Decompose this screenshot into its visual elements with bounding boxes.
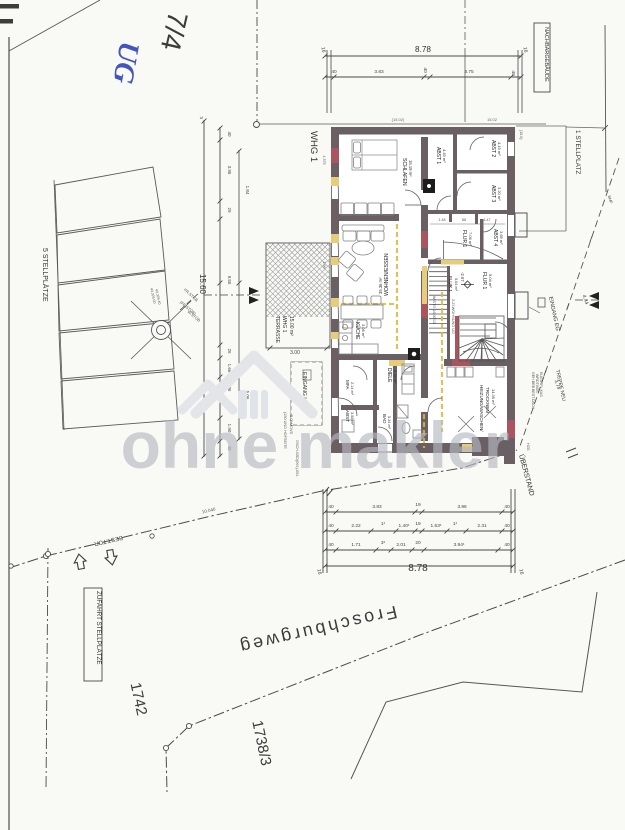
svg-text:19: 19 xyxy=(415,502,421,508)
svg-text:ABST 2: ABST 2 xyxy=(490,140,496,157)
svg-text:3¹: 3¹ xyxy=(381,540,386,546)
svg-text:40: 40 xyxy=(331,69,337,75)
svg-text:3.96: 3.96 xyxy=(457,504,467,510)
svg-text:40: 40 xyxy=(328,523,334,529)
svg-text:1.48: 1.48 xyxy=(439,218,446,222)
svg-text:88: 88 xyxy=(462,218,466,222)
svg-text:1 STELLPLATZ: 1 STELLPLATZ xyxy=(574,130,581,174)
svg-text:2.14 m²: 2.14 m² xyxy=(350,382,354,396)
svg-text:1.40¹: 1.40¹ xyxy=(399,523,410,529)
svg-text:1.63¹: 1.63¹ xyxy=(431,523,442,529)
svg-text:3.06 m²: 3.06 m² xyxy=(361,324,366,338)
svg-text:DIELE: DIELE xyxy=(386,368,392,383)
svg-text:40: 40 xyxy=(510,70,516,76)
svg-text:WRDT.BSS: WRDT.BSS xyxy=(535,374,539,393)
svg-text:WOHNEN/ESSEN: WOHNEN/ESSEN xyxy=(384,253,390,296)
svg-text:WHG 1: WHG 1 xyxy=(308,131,319,162)
svg-text:15.00 m²: 15.00 m² xyxy=(288,316,294,336)
svg-text:WHG 1: WHG 1 xyxy=(281,316,287,333)
svg-text:ABST 3: ABST 3 xyxy=(490,185,496,202)
svg-text:ZUFAHRT STELLPLÄTZE: ZUFAHRT STELLPLÄTZE xyxy=(95,591,103,665)
svg-text:4.15 m²: 4.15 m² xyxy=(497,142,502,156)
svg-text:3.75: 3.75 xyxy=(464,69,474,75)
svg-text:19: 19 xyxy=(415,521,421,527)
svg-text:5.04 m²: 5.04 m² xyxy=(454,278,458,292)
svg-text:3.20 m²: 3.20 m² xyxy=(497,187,502,201)
svg-text:2-ZI.WOHNUNG UG: 2-ZI.WOHNUNG UG xyxy=(451,299,455,334)
svg-text:1.47: 1.47 xyxy=(484,218,491,222)
svg-text:(15.02): (15.02) xyxy=(392,117,405,122)
svg-text:40: 40 xyxy=(504,523,510,529)
svg-text:40: 40 xyxy=(227,131,232,137)
svg-text:7.06 m²: 7.06 m² xyxy=(468,232,473,246)
svg-text:1¹: 1¹ xyxy=(381,521,386,527)
svg-text:1¹: 1¹ xyxy=(453,521,458,527)
svg-text:15.02: 15.02 xyxy=(487,117,498,122)
svg-text:1.84: 1.84 xyxy=(245,186,250,195)
svg-text:4.49 m²: 4.49 m² xyxy=(442,149,447,163)
svg-text:15.60: 15.60 xyxy=(198,274,207,295)
svg-text:NACHBARGEBÄUDE: NACHBARGEBÄUDE xyxy=(543,27,550,82)
svg-text:KÜCHE: KÜCHE xyxy=(354,322,361,340)
svg-text:(15.0): (15.0) xyxy=(519,130,523,139)
svg-text:26: 26 xyxy=(227,348,232,354)
svg-text:15.19 m²: 15.19 m² xyxy=(408,160,413,177)
svg-text:8.78: 8.78 xyxy=(415,45,431,54)
svg-text:W.STG 16/30/15: W.STG 16/30/15 xyxy=(432,296,436,324)
svg-text:FLUR 1: FLUR 1 xyxy=(448,276,453,292)
svg-text:40: 40 xyxy=(328,504,334,510)
svg-text:TERRASSE: TERRASSE xyxy=(274,316,280,344)
svg-text:8.78: 8.78 xyxy=(408,563,428,574)
svg-text:SCHLAFEN: SCHLAFEN xyxy=(401,158,407,186)
svg-text:3.95: 3.95 xyxy=(227,166,232,175)
svg-text:ABST 4: ABST 4 xyxy=(492,229,498,246)
svg-text:FLUR 1: FLUR 1 xyxy=(461,230,467,247)
svg-text:1.71: 1.71 xyxy=(351,542,361,548)
svg-text:4.375: 4.375 xyxy=(322,156,326,165)
svg-text:3.83: 3.83 xyxy=(372,504,382,510)
svg-text:40: 40 xyxy=(504,504,510,510)
svg-text:40: 40 xyxy=(422,67,428,73)
svg-text:40: 40 xyxy=(504,542,510,548)
svg-text:1.99: 1.99 xyxy=(322,262,326,269)
svg-text:29: 29 xyxy=(227,207,232,213)
svg-text:14.35 m²: 14.35 m² xyxy=(491,389,496,405)
svg-text:ohne makler: ohne makler xyxy=(121,408,510,482)
svg-text:3.65 m²: 3.65 m² xyxy=(499,231,504,245)
svg-text:5.04 m²: 5.04 m² xyxy=(488,274,493,288)
svg-text:3.83: 3.83 xyxy=(374,69,384,75)
svg-text:FLUR 1: FLUR 1 xyxy=(481,272,487,289)
svg-text:GEH.BEB.BEST.DACH: GEH.BEB.BEST.DACH xyxy=(531,372,535,410)
svg-text:5.34 m²: 5.34 m² xyxy=(393,370,398,384)
svg-text:HZG: HZG xyxy=(526,443,530,451)
svg-text:ABST 1: ABST 1 xyxy=(435,147,441,164)
svg-text:5 STELLPLÄTZE: 5 STELLPLÄTZE xyxy=(41,248,49,302)
svg-text:2.31: 2.31 xyxy=(477,523,487,529)
svg-text:-2.67: -2.67 xyxy=(460,272,465,282)
svg-text:KUGSTFL.KAS: KUGSTFL.KAS xyxy=(539,372,543,397)
svg-text:40: 40 xyxy=(328,542,334,548)
svg-text:2.01: 2.01 xyxy=(396,542,406,548)
svg-text:20: 20 xyxy=(415,540,421,546)
svg-text:2.22: 2.22 xyxy=(351,523,361,529)
svg-text:3.00: 3.00 xyxy=(290,350,300,356)
svg-text:9.55: 9.55 xyxy=(227,276,232,285)
svg-text:3.94¹: 3.94¹ xyxy=(454,542,465,548)
svg-text:35.36 m²: 35.36 m² xyxy=(378,277,383,294)
svg-text:MFA: MFA xyxy=(345,380,350,390)
